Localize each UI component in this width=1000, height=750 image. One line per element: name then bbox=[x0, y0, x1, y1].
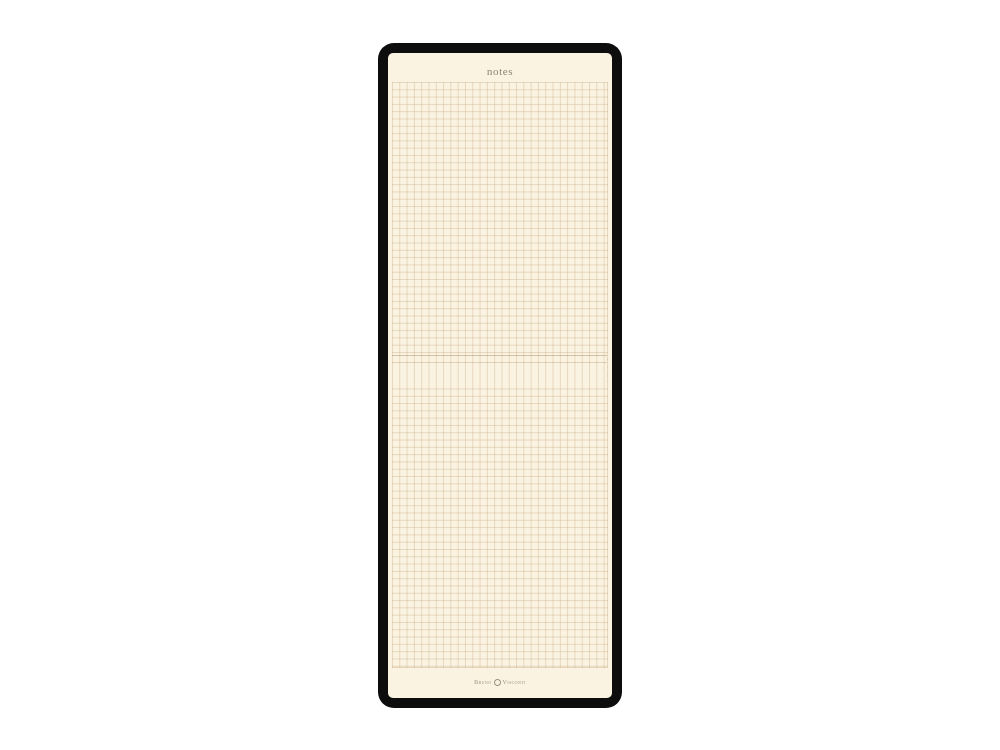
page-title: notes bbox=[487, 66, 513, 82]
notepad-frame: notes Bruno Visconti bbox=[378, 43, 622, 708]
notepad-header: notes bbox=[388, 53, 612, 82]
notepad-paper: notes Bruno Visconti bbox=[388, 53, 612, 698]
page-background: notes Bruno Visconti bbox=[0, 0, 1000, 750]
page-seam bbox=[392, 355, 607, 388]
grid-paper-area bbox=[392, 82, 608, 668]
brand-word-left: Bruno bbox=[474, 679, 491, 687]
brand-word-right: Visconti bbox=[503, 679, 526, 687]
bv-crest-icon bbox=[494, 679, 501, 686]
brand-logo: Bruno Visconti bbox=[388, 679, 612, 687]
